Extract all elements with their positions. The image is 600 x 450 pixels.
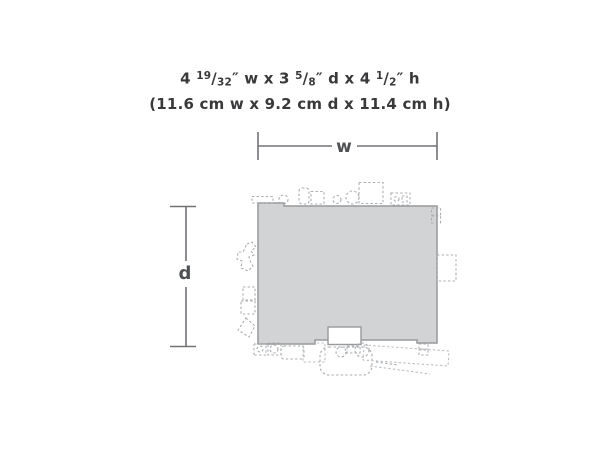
dashed-detail-rect [391, 193, 410, 205]
dashed-detail-rect [243, 287, 255, 300]
dashed-detail-rect [419, 344, 428, 349]
dashed-detail-circle [257, 346, 263, 352]
dashed-detail-line [370, 366, 430, 374]
dashed-detail-circle [394, 197, 399, 202]
dashed-detail-rect [419, 350, 428, 355]
dashed-detail-rect [303, 343, 325, 362]
dashed-detail-circle [346, 191, 359, 204]
dashed-detail-circle [333, 196, 341, 204]
depth-label: d [179, 263, 192, 284]
dashed-detail-diamond [238, 318, 255, 337]
width-dimension-line: w [258, 132, 437, 160]
dashed-detail-tilted-rect [363, 345, 449, 366]
dashed-detail-circle [270, 345, 278, 353]
dashed-detail-circle [336, 347, 346, 357]
entry-notch [328, 327, 361, 345]
bottom-edge-dashed-details [254, 343, 449, 375]
dashed-detail-rounded-rect [281, 346, 304, 359]
dashed-detail-rect [437, 255, 456, 281]
top-edge-dashed-details [252, 183, 410, 206]
dashed-detail-rounded-rect [299, 188, 309, 204]
left-edge-dashed-details [237, 242, 256, 337]
dashed-detail-blob [237, 242, 256, 271]
dashed-detail-rect [359, 183, 383, 204]
product-dimensions-diagram: 4 19/32″ w x 3 5/8″ d x 4 1/2″ h (11.6 c… [0, 0, 600, 450]
footprint-diagram: w d [0, 0, 600, 450]
dashed-detail-rect [402, 196, 407, 202]
depth-dimension-line: d [170, 207, 196, 347]
building-footprint [258, 203, 437, 344]
dashed-detail-rect [254, 344, 266, 355]
dashed-detail-rect [252, 197, 273, 204]
dashed-detail-rect [241, 301, 255, 314]
width-label: w [336, 137, 352, 157]
dashed-detail-rect [311, 192, 324, 205]
